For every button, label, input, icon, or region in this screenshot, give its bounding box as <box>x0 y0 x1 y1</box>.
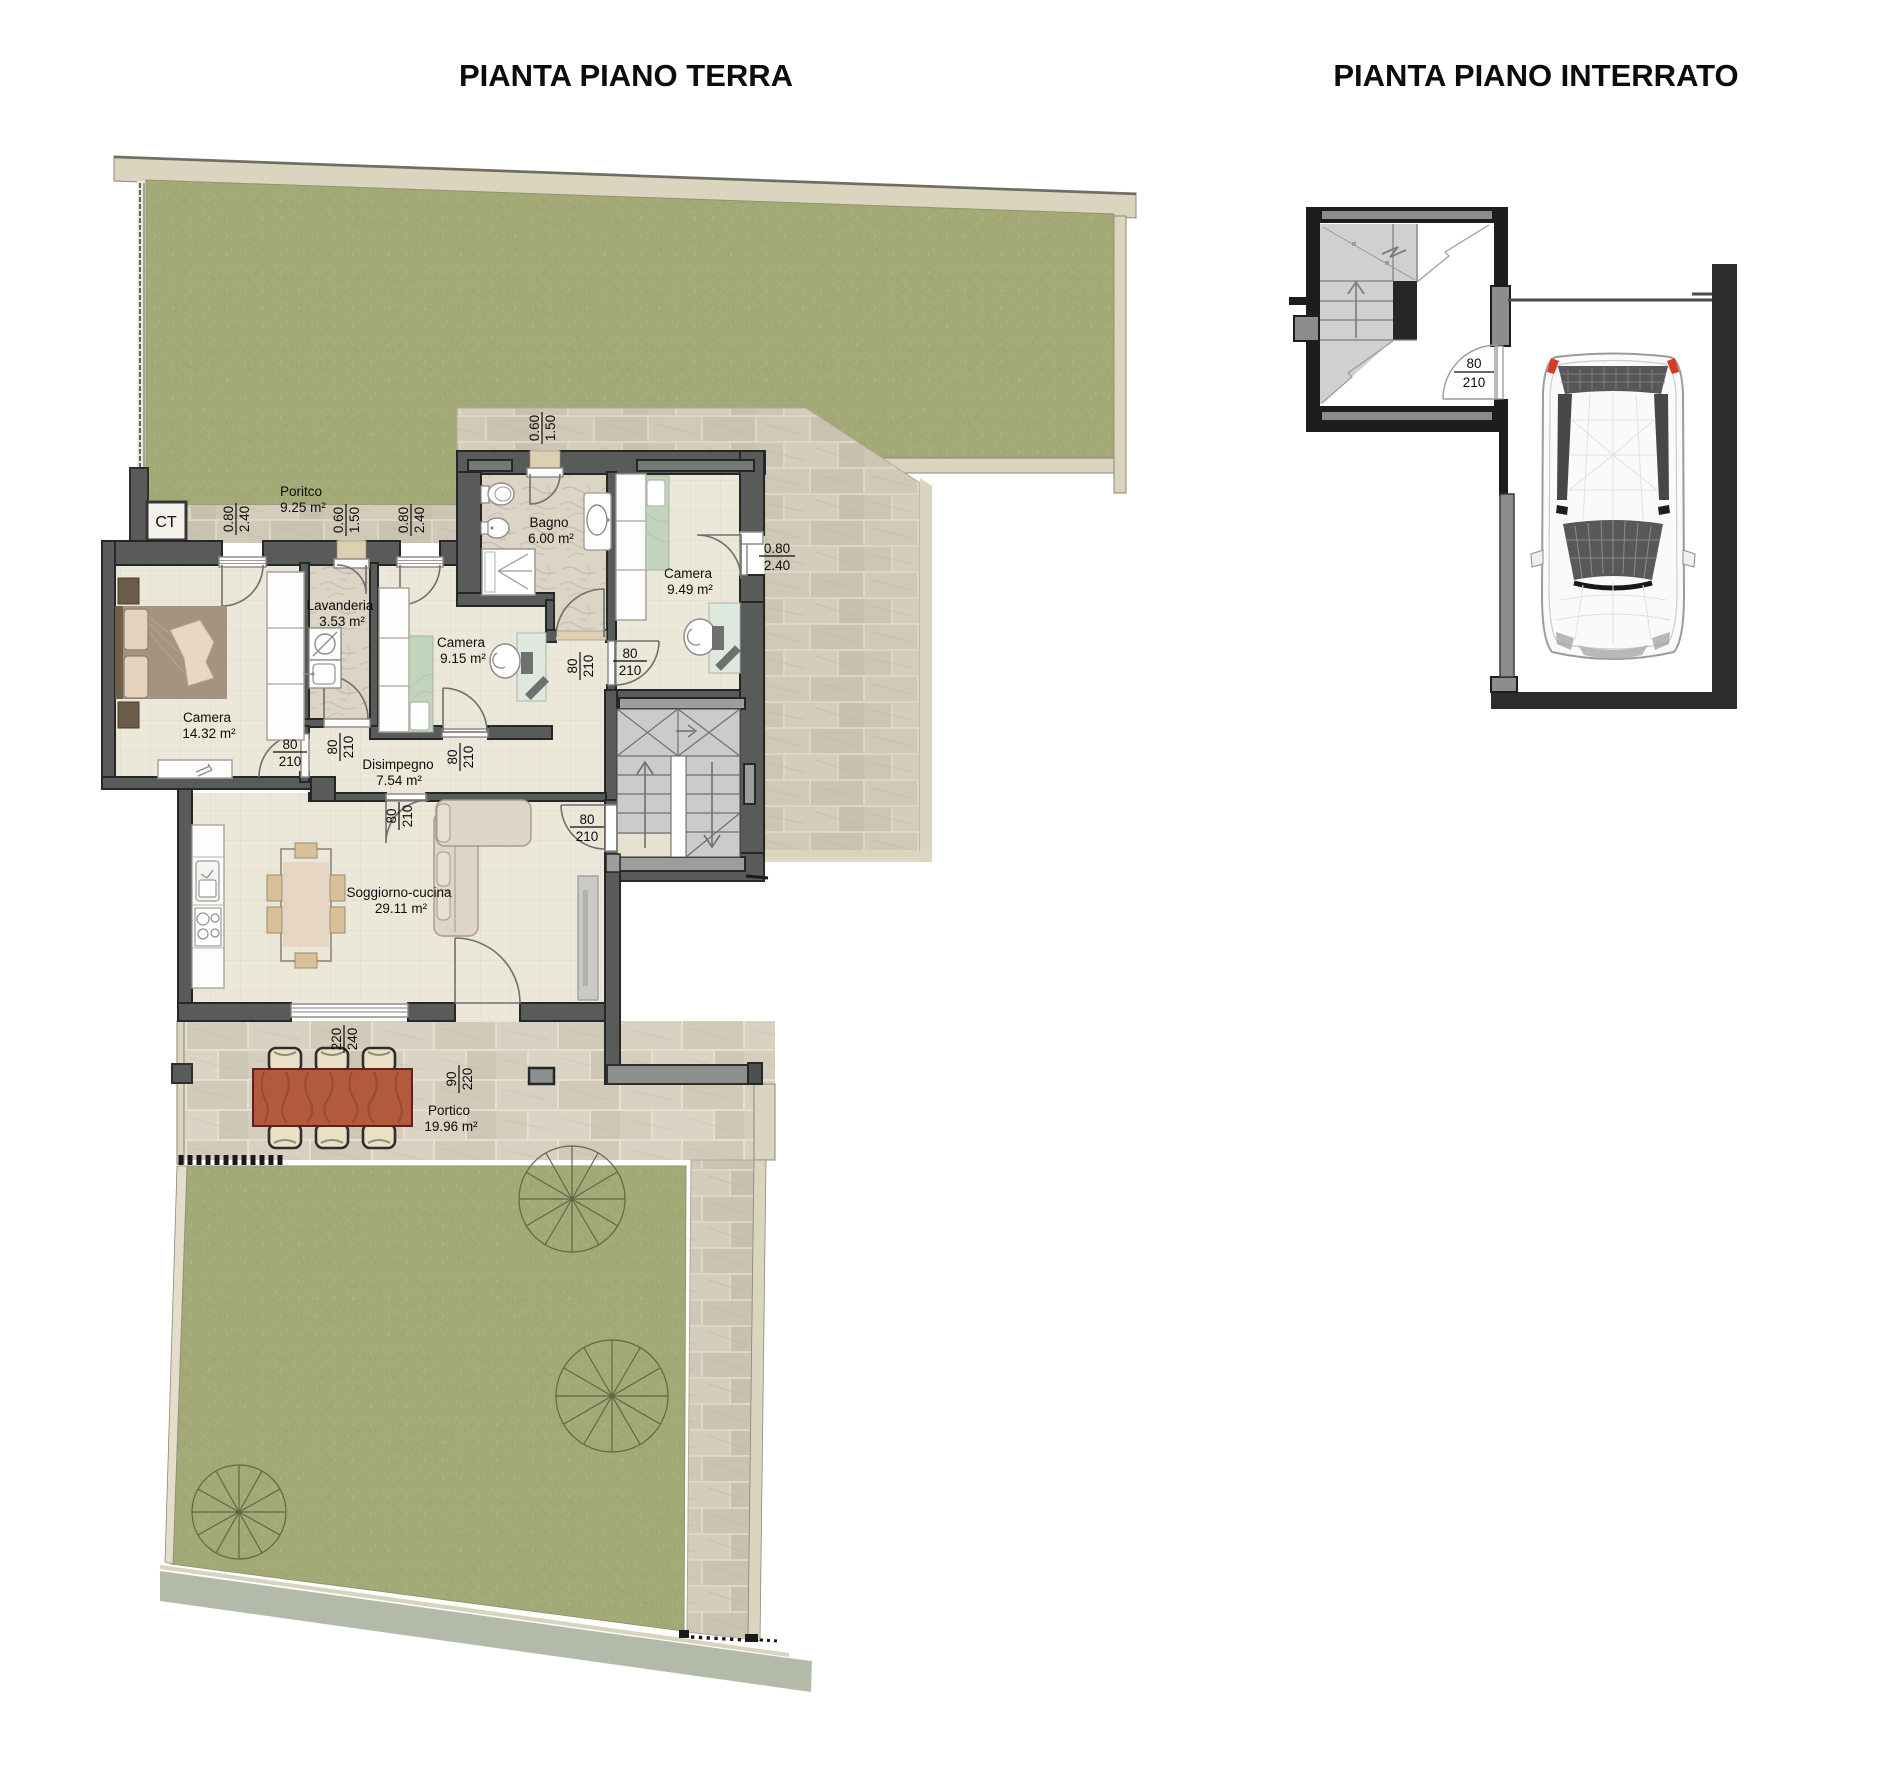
svg-text:80: 80 <box>565 658 580 673</box>
svg-text:210: 210 <box>619 663 642 678</box>
svg-text:29.11 m²: 29.11 m² <box>375 901 428 916</box>
svg-text:80: 80 <box>325 739 340 754</box>
svg-text:Camera: Camera <box>183 710 232 725</box>
svg-text:2.40: 2.40 <box>764 558 790 573</box>
svg-text:19.96 m²: 19.96 m² <box>424 1119 478 1134</box>
svg-text:0.80: 0.80 <box>221 506 236 532</box>
svg-text:9.25 m²: 9.25 m² <box>280 500 326 515</box>
svg-text:210: 210 <box>461 746 476 769</box>
svg-text:2.40: 2.40 <box>412 507 427 533</box>
svg-text:210: 210 <box>576 829 599 844</box>
svg-text:1.50: 1.50 <box>347 507 362 533</box>
svg-text:0.80: 0.80 <box>396 507 411 533</box>
svg-text:Lavanderia: Lavanderia <box>307 598 374 613</box>
svg-text:Bagno: Bagno <box>529 515 568 530</box>
svg-text:210: 210 <box>581 655 596 678</box>
svg-text:3.53 m²: 3.53 m² <box>319 614 365 629</box>
svg-text:80: 80 <box>384 808 399 823</box>
svg-text:9.49 m²: 9.49 m² <box>667 582 713 597</box>
svg-text:7.54 m²: 7.54 m² <box>376 773 422 788</box>
svg-text:Poritco: Poritco <box>280 484 322 499</box>
svg-text:0.60: 0.60 <box>527 415 542 441</box>
svg-text:80: 80 <box>1466 356 1481 371</box>
svg-text:CT: CT <box>155 514 177 531</box>
svg-text:220: 220 <box>460 1068 475 1091</box>
svg-text:210: 210 <box>1463 375 1486 390</box>
svg-text:210: 210 <box>341 736 356 759</box>
svg-text:14.32 m²: 14.32 m² <box>182 726 236 741</box>
svg-text:220: 220 <box>329 1028 344 1051</box>
svg-text:9.15 m²: 9.15 m² <box>440 651 486 666</box>
svg-text:210: 210 <box>400 805 415 828</box>
svg-text:210: 210 <box>279 754 302 769</box>
svg-text:80: 80 <box>282 737 297 752</box>
svg-text:80: 80 <box>579 812 594 827</box>
svg-text:Disimpegno: Disimpegno <box>362 757 433 772</box>
svg-text:80: 80 <box>445 749 460 764</box>
svg-text:PIANTA PIANO TERRA: PIANTA PIANO TERRA <box>459 58 793 93</box>
svg-text:6.00 m²: 6.00 m² <box>528 531 574 546</box>
svg-text:80: 80 <box>622 646 637 661</box>
svg-text:240: 240 <box>345 1028 360 1051</box>
svg-text:PIANTA PIANO INTERRATO: PIANTA PIANO INTERRATO <box>1333 58 1738 93</box>
svg-text:Camera: Camera <box>664 566 713 581</box>
svg-text:90: 90 <box>444 1071 459 1086</box>
svg-text:Camera: Camera <box>437 635 486 650</box>
svg-text:2.40: 2.40 <box>237 506 252 532</box>
svg-text:1.50: 1.50 <box>543 415 558 441</box>
svg-text:0.80: 0.80 <box>764 541 790 556</box>
svg-text:Soggiorno-cucina: Soggiorno-cucina <box>346 885 452 900</box>
svg-text:0.60: 0.60 <box>331 507 346 533</box>
svg-text:Portico: Portico <box>428 1103 470 1118</box>
